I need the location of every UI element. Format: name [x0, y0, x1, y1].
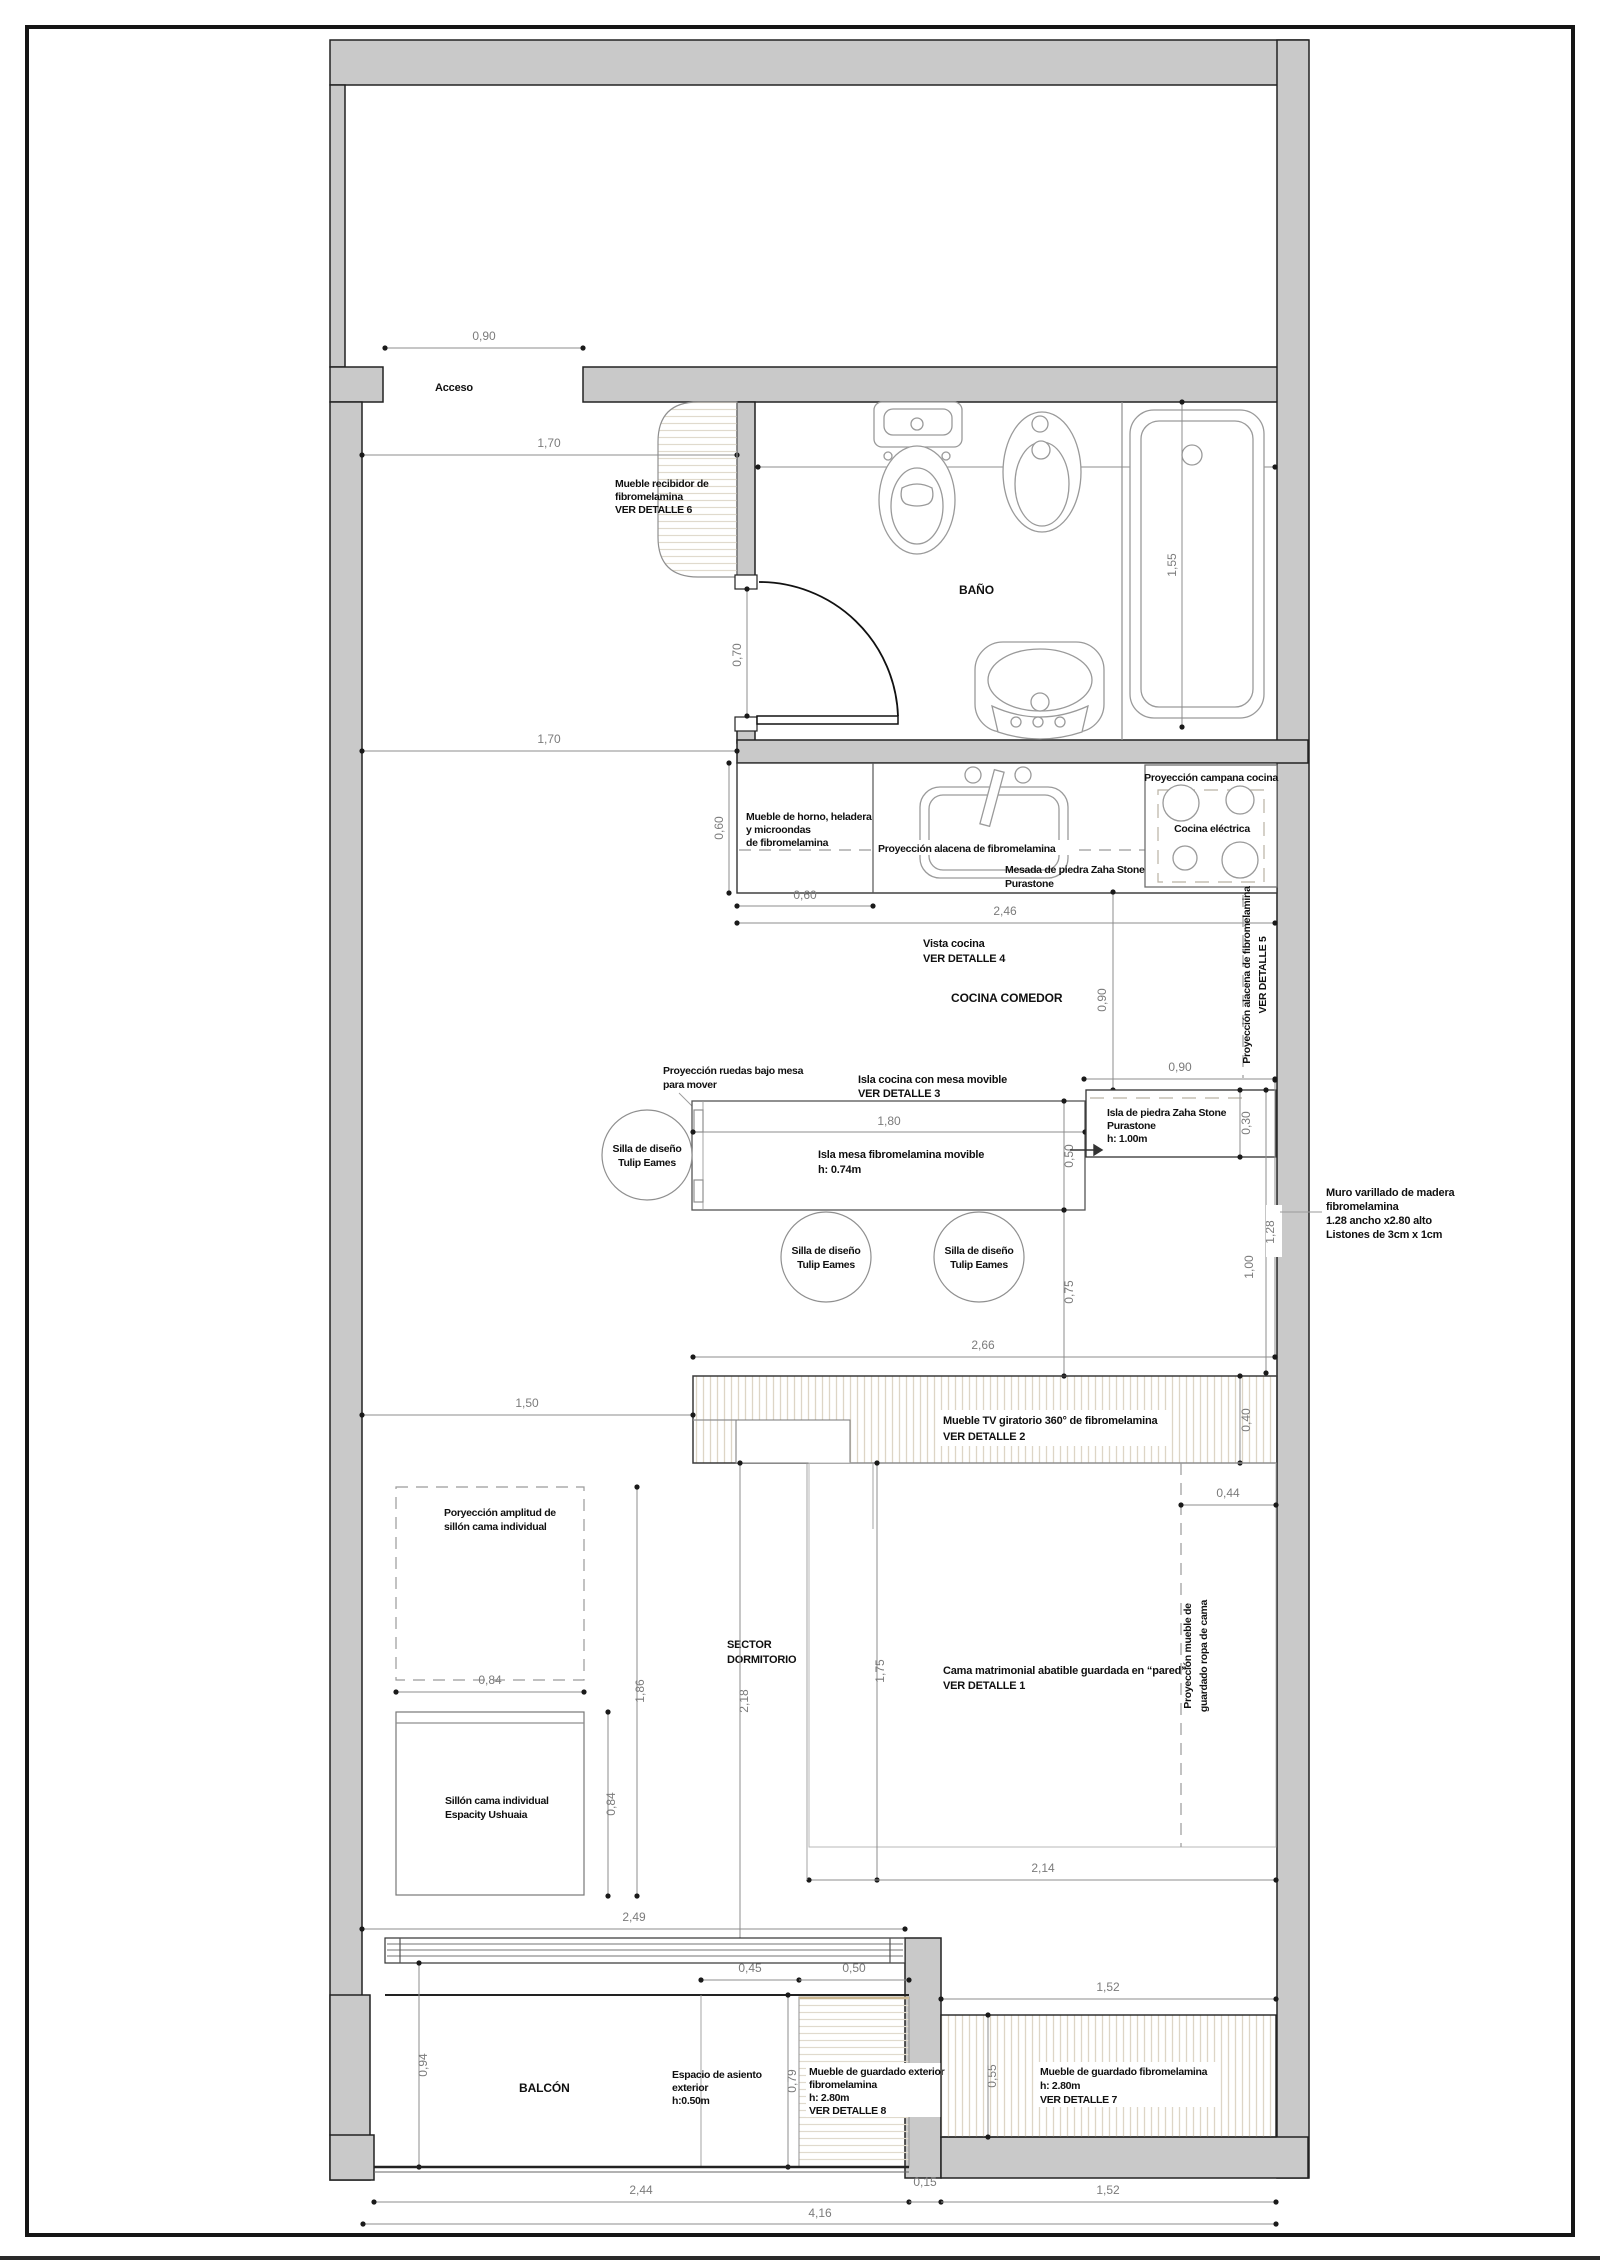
label-asiento-1: Espacio de asiento	[672, 2069, 762, 2081]
label-horno-2: y microondas	[746, 824, 811, 836]
bidet	[1003, 412, 1081, 532]
label-muro-2: fibromelamina	[1326, 1201, 1400, 1213]
label-asiento-3: h:0.50m	[672, 2095, 710, 2107]
wall-bathroom-bottom	[737, 740, 1308, 763]
dim-island-total: 2,66	[971, 1338, 995, 1352]
door-leaf	[757, 716, 898, 724]
label-isla-cocina-2: VER DETALLE 3	[858, 1088, 940, 1100]
dim-storage-length: 1,52	[1096, 2183, 1120, 2197]
dim-island-width: 0,50	[1062, 1144, 1076, 1168]
label-vista-cocina-1: Vista cocina	[923, 938, 986, 950]
bathroom: 2,37 BAÑO 1,55	[758, 402, 1275, 740]
chair-right: Silla de diseño Tulip Eames	[934, 1212, 1024, 1302]
label-alacena5-1: Proyección alacena de fibromelamina	[1241, 886, 1253, 1064]
label-guardado-ext-2: fibromelamina	[809, 2079, 877, 2091]
room-label-bathroom: BAÑO	[959, 582, 994, 597]
bathroom-door: 0,70	[730, 575, 898, 731]
wall-left	[330, 402, 362, 2135]
stone-island-label-3: h: 1.00m	[1107, 1133, 1147, 1145]
label-ropa-1: Proyección mueble de	[1182, 1603, 1194, 1709]
dim-counter-length: 2,46	[993, 904, 1017, 918]
chair-right-label-2: Tulip Eames	[950, 1259, 1008, 1271]
dim-bathtub-length: 1,55	[1165, 553, 1179, 577]
label-ropa-2: guardado ropa de cama	[1198, 1599, 1210, 1712]
floor-plan-drawing: 0,90 Acceso 1,70 Mueble recibidor de fib…	[0, 0, 1600, 2262]
label-mesada-1: Mesada de piedra Zaha Stone	[1005, 864, 1145, 876]
label-tv-1: Mueble TV giratorio 360° de fibromelamin…	[943, 1415, 1158, 1427]
dim-wall-segment: 1,00	[1242, 1255, 1256, 1279]
label-sillon-2: Espacity Ushuaia	[445, 1809, 528, 1821]
chair-middle-label-2: Tulip Eames	[797, 1259, 855, 1271]
label-mesada-2: Purastone	[1005, 878, 1054, 890]
label-vista-cocina-2: VER DETALLE 4	[923, 953, 1006, 965]
island-dining: Proyección ruedas bajo mesa para mover I…	[602, 1060, 1276, 1376]
label-cama-2: VER DETALLE 1	[943, 1680, 1025, 1692]
label-guardado-ext-4: VER DETALLE 8	[809, 2105, 886, 2117]
dim-sector-width: 1,50	[515, 1396, 539, 1410]
dim-sofa-length: 0,84	[604, 1792, 618, 1816]
door-jamb-bottom	[735, 717, 757, 731]
dim-horno-width: 0,60	[793, 888, 817, 902]
label-muro-3: 1.28 ancho x2.80 alto	[1326, 1215, 1432, 1227]
label-alacena: Proyección alacena de fibromelamina	[878, 843, 1056, 855]
chair-left-label-1: Silla de diseño	[612, 1143, 681, 1155]
dim-acceso-width: 0,90	[472, 329, 496, 343]
dim-sofa-projection: 1,86	[633, 1679, 647, 1703]
label-cama-1: Cama matrimonial abatible guardada en “p…	[943, 1665, 1186, 1677]
wall-bottom-right	[941, 2137, 1308, 2178]
dim-door-width: 0,70	[730, 643, 744, 667]
label-sillon-1: Sillón cama individual	[445, 1795, 549, 1807]
label-cocina-electrica: Cocina eléctrica	[1174, 823, 1250, 835]
dim-storage-top: 1,52	[1096, 1980, 1120, 1994]
balcony: 2,49 0,45 0,50 0,79 0,94 BALCÓN Espacio …	[362, 1910, 945, 2172]
label-proy-sillon-2: sillón cama individual	[444, 1521, 547, 1533]
chair-middle: Silla de diseño Tulip Eames	[781, 1212, 871, 1302]
wall-balcony-left-foot	[330, 2135, 374, 2180]
dim-counter-depth: 0,60	[712, 816, 726, 840]
door-jamb-top	[735, 575, 757, 589]
label-horno-1: Mueble de horno, heladera	[746, 811, 872, 823]
wall-bathroom-vertical	[737, 402, 755, 577]
right-storage: 1,52 0,55 Mueble de guardado fibromelami…	[941, 1980, 1276, 2137]
label-alacena5-2: VER DETALLE 5	[1257, 936, 1269, 1013]
dim-muro-width: 1,28	[1263, 1220, 1277, 1244]
dim-stone-island-gap: 0,90	[1168, 1060, 1192, 1074]
label-isla-mesa-1: Isla mesa fibromelamina movible	[818, 1149, 984, 1161]
bathtub	[1130, 410, 1264, 718]
label-guardado-ext-1: Mueble de guardado exterior	[809, 2066, 945, 2078]
wall-top-room-left	[330, 85, 345, 367]
dim-hall-top: 1,70	[537, 436, 561, 450]
label-acceso: Acceso	[435, 382, 473, 394]
room-label-sector-2: DORMITORIO	[727, 1654, 797, 1666]
cooktop: Proyección campana cocina Cocina eléctri…	[1144, 765, 1278, 887]
dim-walkway: 0,75	[1062, 1280, 1076, 1304]
dim-storage-depth: 0,55	[985, 2064, 999, 2088]
label-horno-3: de fibromelamina	[746, 837, 829, 849]
wall-balcony-right	[905, 1938, 941, 2178]
dim-bed-length: 1,75	[873, 1659, 887, 1683]
toilet	[874, 402, 962, 554]
tv-notch	[736, 1420, 850, 1463]
dim-balcony-length: 2,44	[629, 2183, 653, 2197]
dim-kitchen-island-gap: 0,90	[1095, 988, 1109, 1012]
label-ruedas-2: para mover	[663, 1079, 717, 1091]
floor-plan-page: 0,90 Acceso 1,70 Mueble recibidor de fib…	[0, 0, 1600, 2262]
label-recibidor-3: VER DETALLE 6	[615, 504, 692, 516]
label-isla-mesa-2: h: 0.74m	[818, 1164, 861, 1176]
chair-left-label-2: Tulip Eames	[618, 1157, 676, 1169]
dim-seat-depth: 0,79	[785, 2069, 799, 2093]
chair-middle-label-1: Silla de diseño	[791, 1245, 860, 1257]
stone-island-label-1: Isla de piedra Zaha Stone	[1107, 1107, 1227, 1119]
dim-bedroom-length: 2,18	[737, 1689, 751, 1713]
dim-seat-b: 0,50	[842, 1961, 866, 1975]
balcony-window	[385, 1938, 905, 1963]
dim-island-length: 1,80	[877, 1114, 901, 1128]
label-guardado-3: VER DETALLE 7	[1040, 2094, 1117, 2106]
label-muro-4: Listones de 3cm x 1cm	[1326, 1229, 1443, 1241]
label-recibidor-2: fibromelamina	[615, 491, 683, 503]
dim-tv-depth: 0,40	[1239, 1408, 1253, 1432]
stone-island-label-2: Purastone	[1107, 1120, 1156, 1132]
wall-top-room-bottom	[583, 367, 1308, 402]
label-ruedas-1: Proyección ruedas bajo mesa	[663, 1065, 804, 1077]
room-label-cocina-comedor: COCINA COMEDOR	[951, 991, 1063, 1005]
dim-hall-bottom: 1,70	[537, 732, 561, 746]
dim-seat-a: 0,45	[738, 1961, 762, 1975]
dim-bed-width: 2,14	[1031, 1861, 1055, 1875]
dim-wardrobe-depth: 0,44	[1216, 1486, 1240, 1500]
chair-left: Silla de diseño Tulip Eames	[602, 1110, 692, 1200]
wall-right	[1277, 40, 1309, 2178]
chair-right-label-1: Silla de diseño	[944, 1245, 1013, 1257]
label-proy-sillon-1: Poryección amplitud de	[444, 1507, 556, 1519]
witness-lines	[807, 1463, 873, 1880]
dim-stone-island-depth: 0,30	[1239, 1111, 1253, 1135]
dim-wall-15: 0,15	[913, 2175, 937, 2189]
room-label-balcon: BALCÓN	[519, 2080, 570, 2095]
door-swing-arc	[759, 582, 898, 716]
bedroom: Poryección amplitud de sillón cama indiv…	[396, 1463, 1276, 1940]
bathroom-sink	[975, 642, 1104, 739]
label-guardado-ext-3: h: 2.80m	[809, 2092, 849, 2104]
room-label-sector-1: SECTOR	[727, 1639, 772, 1651]
label-campana: Proyección campana cocina	[1144, 772, 1278, 784]
label-muro-1: Muro varillado de madera	[1326, 1187, 1456, 1199]
dim-total-width: 4,16	[808, 2206, 832, 2220]
label-guardado-1: Mueble de guardado fibromelamina	[1040, 2066, 1208, 2078]
label-asiento-2: exterior	[672, 2082, 708, 2094]
wall-acceso-stub	[330, 367, 383, 402]
tv-wall: Mueble TV giratorio 360° de fibromelamin…	[362, 1376, 1277, 1463]
wall-top	[330, 40, 1308, 85]
dim-balcony-depth: 0,94	[416, 2053, 430, 2077]
kitchen: Mueble de horno, heladera y microondas d…	[712, 763, 1278, 1090]
dim-sofa-width: 0,84	[478, 1673, 502, 1687]
label-isla-cocina-1: Isla cocina con mesa movible	[858, 1074, 1007, 1086]
label-guardado-2: h: 2.80m	[1040, 2080, 1080, 2092]
label-tv-2: VER DETALLE 2	[943, 1431, 1025, 1443]
label-recibidor-1: Mueble recibidor de	[615, 478, 709, 490]
bottom-dimensions: 2,44 0,15 1,52 4,16	[363, 2175, 1276, 2224]
dim-window-width: 2,49	[622, 1910, 646, 1924]
